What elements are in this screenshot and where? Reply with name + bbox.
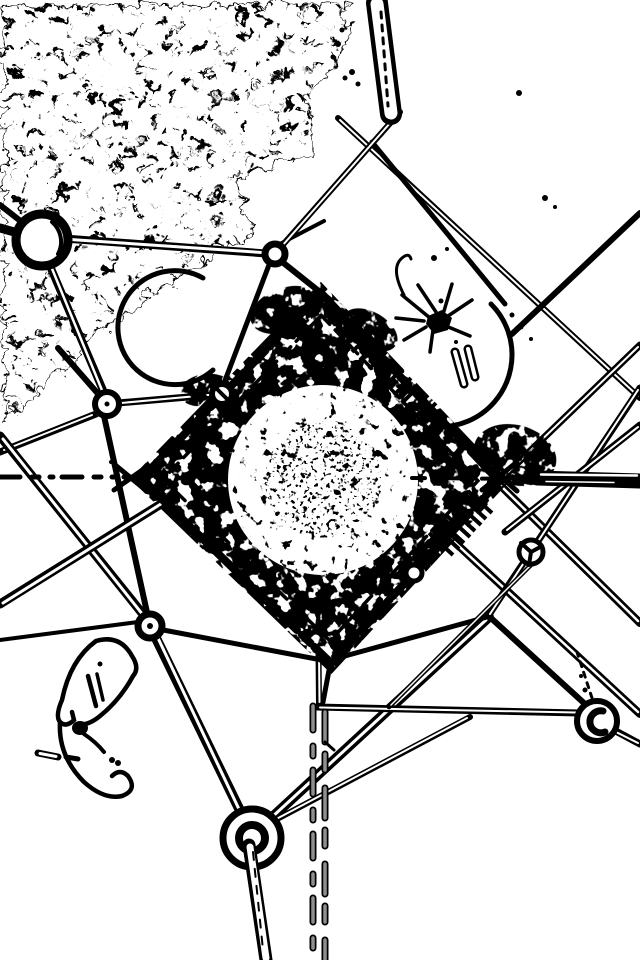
tower-edge-drawing: Dense foliage edge texture, upper left C… xyxy=(0,0,640,960)
joint-b xyxy=(265,244,285,264)
joint-i xyxy=(406,565,422,581)
vertical-rod: Vertical rod, top center xyxy=(377,3,391,114)
edge-filtered-photo: Dense foliage edge texture, upper left C… xyxy=(0,0,640,960)
